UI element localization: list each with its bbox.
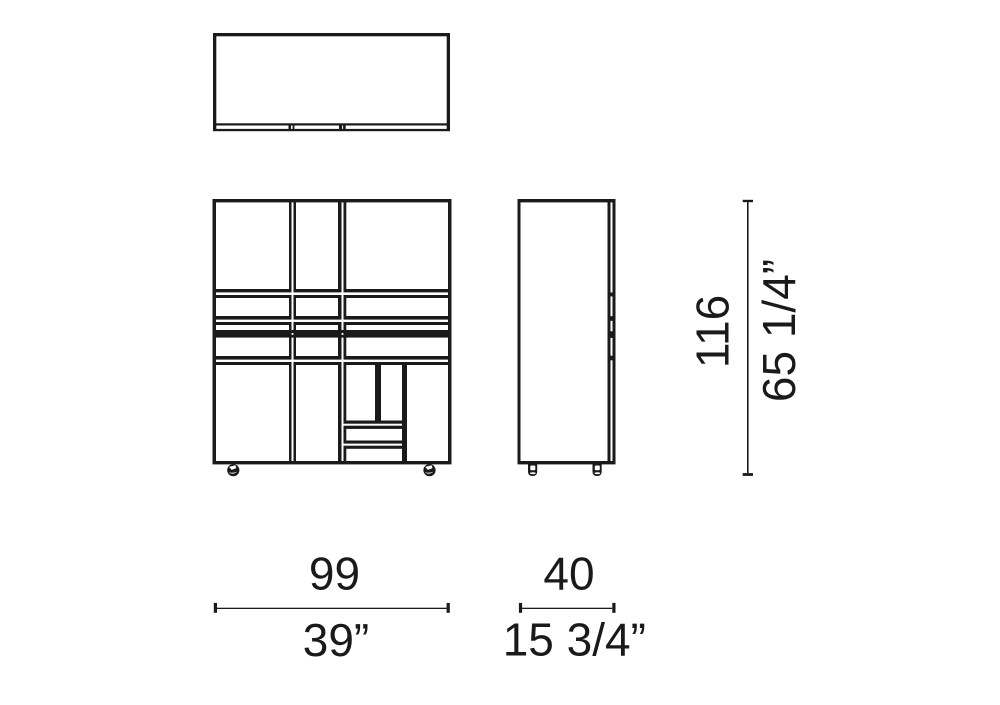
svg-text:99: 99 xyxy=(309,548,360,600)
svg-text:39”: 39” xyxy=(303,614,369,666)
svg-text:116: 116 xyxy=(687,295,739,368)
svg-text:15 3/4”: 15 3/4” xyxy=(503,614,646,666)
svg-text:65 1/4”: 65 1/4” xyxy=(753,259,805,402)
svg-text:40: 40 xyxy=(543,547,594,599)
